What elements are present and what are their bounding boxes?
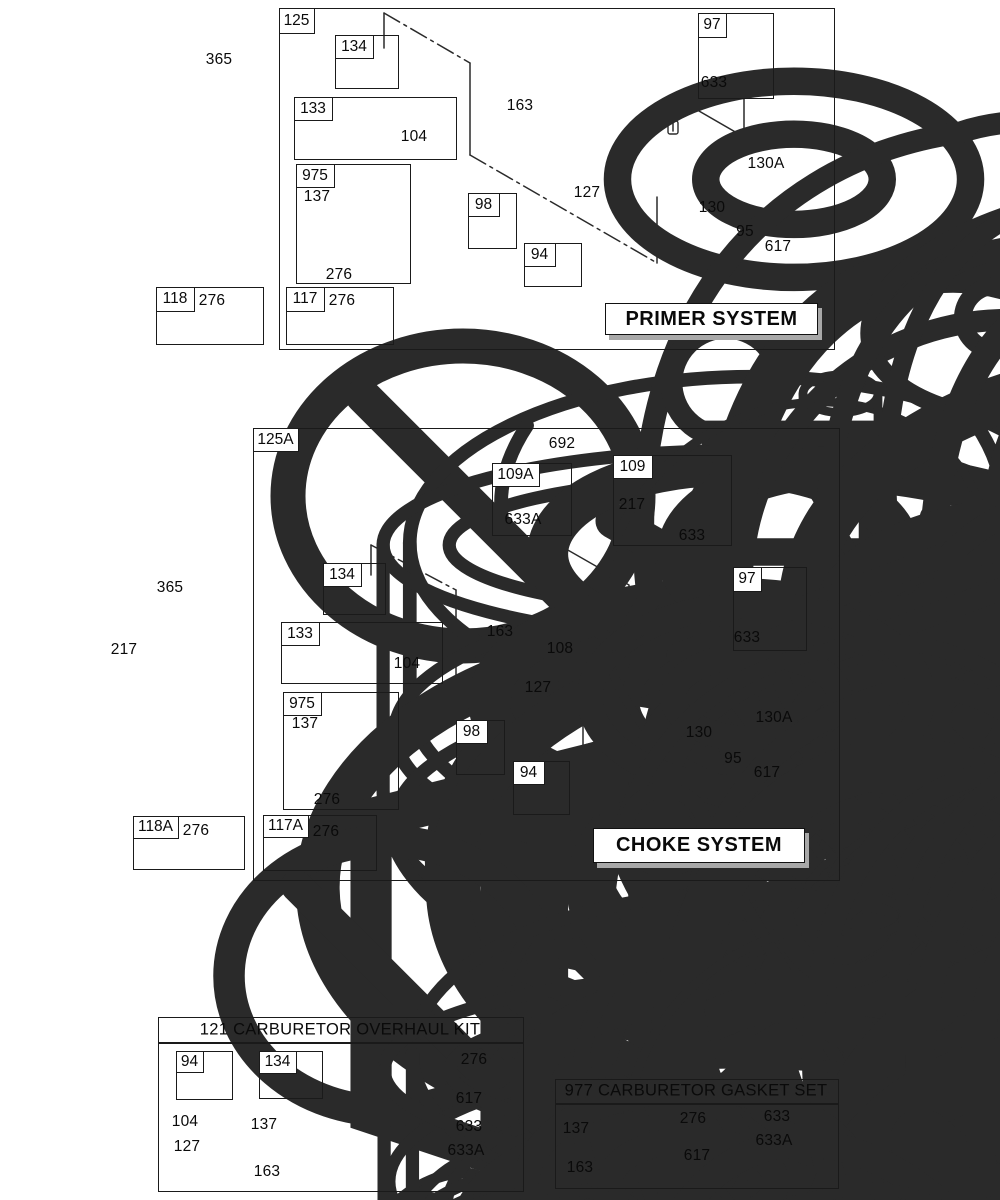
part-number-label: 95 xyxy=(724,750,742,768)
choke-callout-134: 134 xyxy=(323,563,386,615)
part-number-label: 276 xyxy=(680,1110,706,1128)
primer-callout-94: 94 xyxy=(524,243,582,287)
part-number-label: 95 xyxy=(736,223,754,241)
part-number-label: 276 xyxy=(314,791,340,809)
part-number-label: 276 xyxy=(313,823,339,841)
choke-callout-109-label: 109 xyxy=(613,455,653,479)
part-number-label: 276 xyxy=(329,292,355,310)
part-number-label: 127 xyxy=(574,184,600,202)
primer-callout-118-label: 118 xyxy=(156,287,195,312)
parts-diagram-page: 125 134 133 975 98 94 118 117 97 PRIMER … xyxy=(0,0,1000,1200)
overhaul-kit-title-divider xyxy=(159,1042,523,1044)
primer-callout-975: 975 xyxy=(296,164,411,284)
part-number-label: 633A xyxy=(505,511,542,529)
part-number-label: 104 xyxy=(401,128,427,146)
part-number-label: 130A xyxy=(748,155,785,173)
part-number-label: 130 xyxy=(699,199,725,217)
choke-callout-94-label: 94 xyxy=(513,761,545,785)
choke-callout-975: 975 xyxy=(283,692,399,810)
choke-callout-94: 94 xyxy=(513,761,570,815)
choke-callout-134-label: 134 xyxy=(323,563,362,587)
part-number-label: 633 xyxy=(764,1108,790,1126)
part-number-label: 276 xyxy=(183,822,209,840)
part-number-label: 137 xyxy=(304,188,330,206)
part-number-label: 276 xyxy=(199,292,225,310)
part-number-label: 163 xyxy=(487,623,513,641)
choke-callout-109A-label: 109A xyxy=(492,463,540,487)
part-number-label: 163 xyxy=(254,1163,280,1181)
choke-callout-97-label: 97 xyxy=(733,567,762,592)
choke-callout-133-label: 133 xyxy=(281,622,320,646)
part-number-label: 130A xyxy=(756,709,793,727)
part-number-label: 276 xyxy=(326,266,352,284)
primer-callout-133: 133 xyxy=(294,97,457,160)
primer-callout-134-label: 134 xyxy=(335,35,374,59)
part-number-label: 163 xyxy=(507,97,533,115)
choke-callout-133: 133 xyxy=(281,622,443,684)
part-number-label: 365 xyxy=(206,51,232,69)
part-number-label: 137 xyxy=(292,715,318,733)
gasket-set-title: 977 CARBURETOR GASKET SET xyxy=(565,1082,828,1101)
part-number-label: 633A xyxy=(448,1142,485,1160)
part-number-label: 137 xyxy=(563,1120,589,1138)
primer-callout-133-label: 133 xyxy=(294,97,333,121)
part-number-label: 104 xyxy=(394,655,420,673)
choke-callout-118A-label: 118A xyxy=(133,816,179,839)
part-number-label: 633A xyxy=(756,1132,793,1150)
kit-callout-94-label: 94 xyxy=(176,1051,204,1073)
part-number-label: 617 xyxy=(684,1147,710,1165)
part-number-label: 692 xyxy=(549,435,575,453)
choke-section-label: 125A xyxy=(253,428,299,452)
part-number-label: 276 xyxy=(461,1051,487,1069)
part-number-label: 137 xyxy=(251,1116,277,1134)
primer-callout-97-label: 97 xyxy=(698,13,727,38)
primer-callout-134: 134 xyxy=(335,35,399,89)
primer-section-label: 125 xyxy=(279,8,315,34)
part-number-label: 633 xyxy=(679,527,705,545)
part-number-label: 365 xyxy=(157,579,183,597)
part-number-label: 633 xyxy=(456,1118,482,1136)
part-number-label: 617 xyxy=(754,764,780,782)
part-number-label: 217 xyxy=(619,496,645,514)
primer-callout-117-label: 117 xyxy=(286,287,325,312)
overhaul-kit-title: 121 CARBURETOR OVERHAUL KIT xyxy=(200,1021,480,1040)
part-number-label: 163 xyxy=(567,1159,593,1177)
choke-callout-98-label: 98 xyxy=(456,720,488,744)
part-number-label: 633 xyxy=(734,629,760,647)
primer-callout-975-label: 975 xyxy=(296,164,335,188)
choke-callout-975-label: 975 xyxy=(283,692,322,716)
primer-callout-94-label: 94 xyxy=(524,243,556,267)
part-number-label: 617 xyxy=(456,1090,482,1108)
part-number-label: 130 xyxy=(686,724,712,742)
part-number-label: 127 xyxy=(525,679,551,697)
part-number-label: 617 xyxy=(765,238,791,256)
primer-callout-98-label: 98 xyxy=(468,193,500,217)
kit-callout-94: 94 xyxy=(176,1051,233,1100)
kit-callout-134-label: 134 xyxy=(259,1051,297,1074)
part-number-label: 217 xyxy=(111,641,137,659)
choke-system-title: CHOKE SYSTEM xyxy=(593,828,805,863)
gasket-set-title-divider xyxy=(556,1103,838,1105)
kit-callout-134: 134 xyxy=(259,1051,323,1099)
part-number-label: 633 xyxy=(701,74,727,92)
part-number-label: 104 xyxy=(172,1113,198,1131)
choke-callout-98: 98 xyxy=(456,720,505,775)
part-number-label: 108 xyxy=(547,640,573,658)
primer-system-title: PRIMER SYSTEM xyxy=(605,303,818,335)
part-number-label: 127 xyxy=(174,1138,200,1156)
choke-callout-117A-label: 117A xyxy=(263,815,309,838)
primer-callout-98: 98 xyxy=(468,193,517,249)
